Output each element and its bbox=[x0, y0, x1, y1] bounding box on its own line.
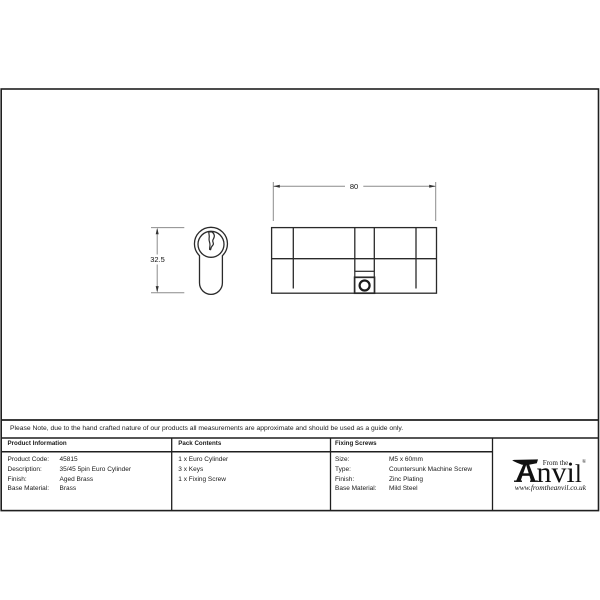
svg-text:®: ® bbox=[582, 458, 586, 465]
svg-text:32.5: 32.5 bbox=[150, 255, 165, 264]
svg-text:From the: From the bbox=[542, 459, 567, 467]
svg-text:80: 80 bbox=[350, 182, 358, 191]
svg-text:www.fromtheanvil.co.uk: www.fromtheanvil.co.uk bbox=[514, 483, 586, 492]
